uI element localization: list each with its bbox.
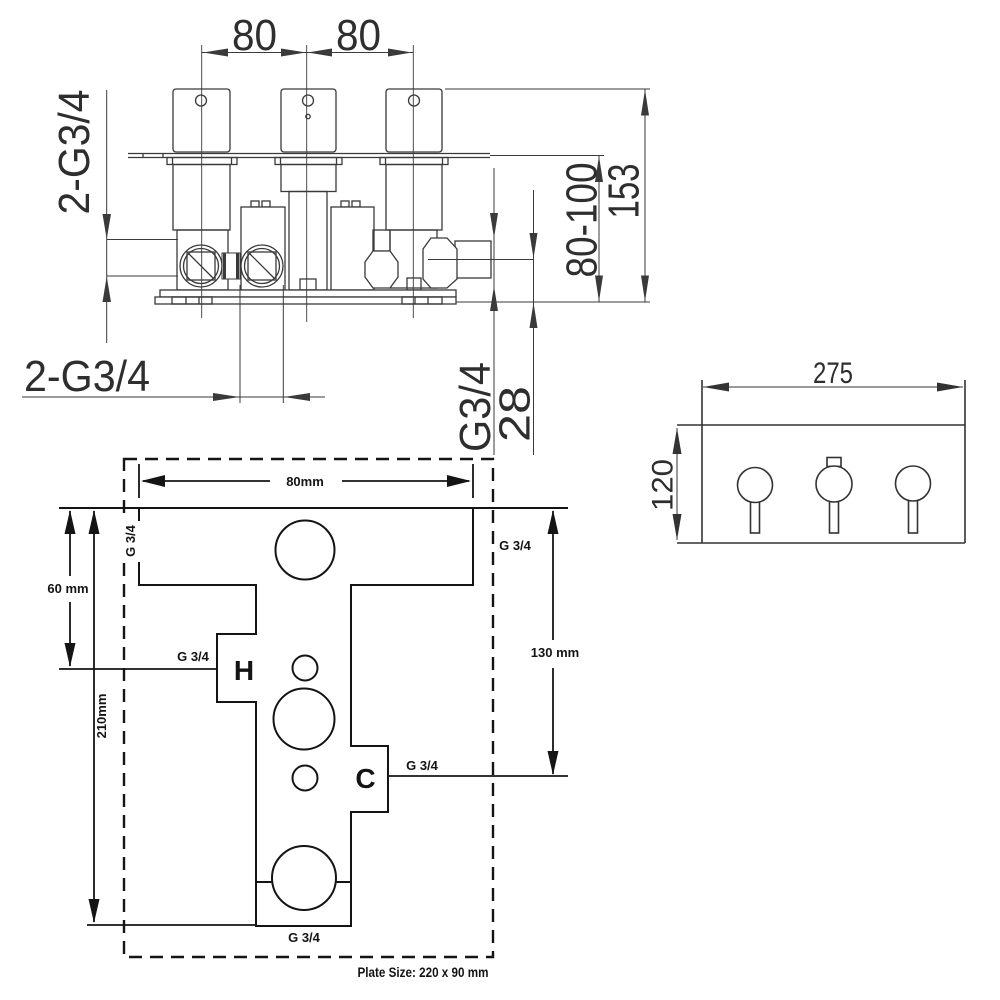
knob-3	[896, 466, 931, 533]
knob-2	[816, 458, 852, 534]
bottom-port-label: G 3/4	[288, 930, 321, 945]
hot-port-label: G 3/4	[177, 649, 210, 664]
union-nipple	[222, 253, 240, 279]
cold-port-offset-label: 130 mm	[531, 645, 579, 660]
valve-front-view: 80 80 2-G3/4 2-G3/4 G3/4 28 80-100 153	[22, 11, 650, 455]
plate-width-label: 275	[813, 357, 853, 390]
technical-drawing-page: 80 80 2-G3/4 2-G3/4 G3/4 28 80-100 153	[0, 0, 1000, 1000]
outlet-assembly	[365, 230, 534, 288]
handle-cartridge-2	[281, 89, 336, 152]
inlet-union-1	[180, 245, 222, 287]
outlet-offset-label: 28	[491, 386, 540, 442]
dim-80-left-label: 80	[232, 11, 277, 60]
plate-size-note: Plate Size: 220 x 90 mm	[358, 965, 489, 980]
cartridge-flanges	[167, 158, 448, 165]
cold-marker: C	[355, 763, 375, 794]
plate-height-label: 120	[647, 459, 680, 511]
dim-cold-port-offset	[548, 510, 559, 775]
small-port-circle-2	[293, 766, 318, 791]
trim-plate-view: 275 120	[647, 357, 966, 543]
inlet-ports-bottom-label: 2-G3/4	[24, 352, 150, 401]
top-port-offset-label: 60 mm	[47, 581, 88, 596]
knob-1	[738, 468, 773, 534]
dim-template-height	[87, 510, 256, 925]
top-port-circle	[276, 521, 335, 580]
dim-80-right-label: 80	[336, 11, 381, 60]
total-height-label: 153	[600, 164, 649, 219]
small-port-circle-1	[293, 656, 318, 681]
drawing-canvas: 80 80 2-G3/4 2-G3/4 G3/4 28 80-100 153	[0, 0, 1000, 1000]
handle-cartridge-3	[386, 89, 442, 152]
inlet-ports-side-label: 2-G3/4	[50, 90, 99, 215]
template-height-label: 210mm	[94, 694, 109, 739]
inlet-union-2	[241, 245, 283, 287]
mounting-template-view: 80mm 60 mm 210mm 130 mm G 3/4 G 3/4 G 3/…	[47, 459, 579, 980]
center-port-circle	[274, 689, 335, 750]
bottom-port-circle	[272, 846, 336, 910]
cold-port-label: G 3/4	[406, 758, 439, 773]
port-top-left-label: G 3/4	[123, 524, 138, 557]
dim-inlet-span-left	[103, 90, 179, 343]
port-top-right-label: G 3/4	[499, 538, 532, 553]
template-width-label: 80mm	[286, 474, 324, 489]
hot-marker: H	[234, 655, 254, 686]
